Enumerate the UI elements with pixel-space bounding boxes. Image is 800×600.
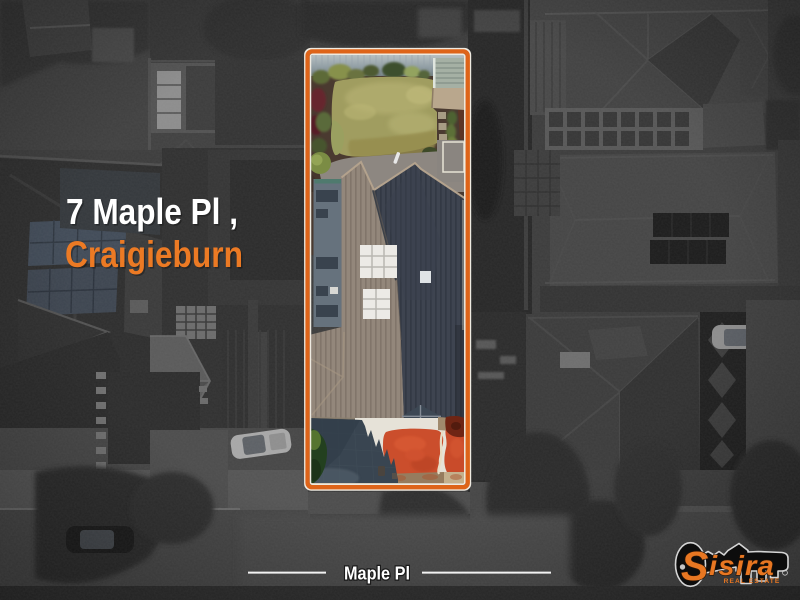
svg-text:Craigieburn: Craigieburn [65, 233, 243, 275]
svg-text:Maple Pl: Maple Pl [344, 563, 410, 584]
svg-text:REAL ESTATE: REAL ESTATE [724, 578, 781, 585]
svg-text:7 Maple Pl ,: 7 Maple Pl , [66, 191, 238, 232]
svg-text:S: S [681, 543, 708, 589]
svg-text:isira: isira [709, 550, 775, 581]
